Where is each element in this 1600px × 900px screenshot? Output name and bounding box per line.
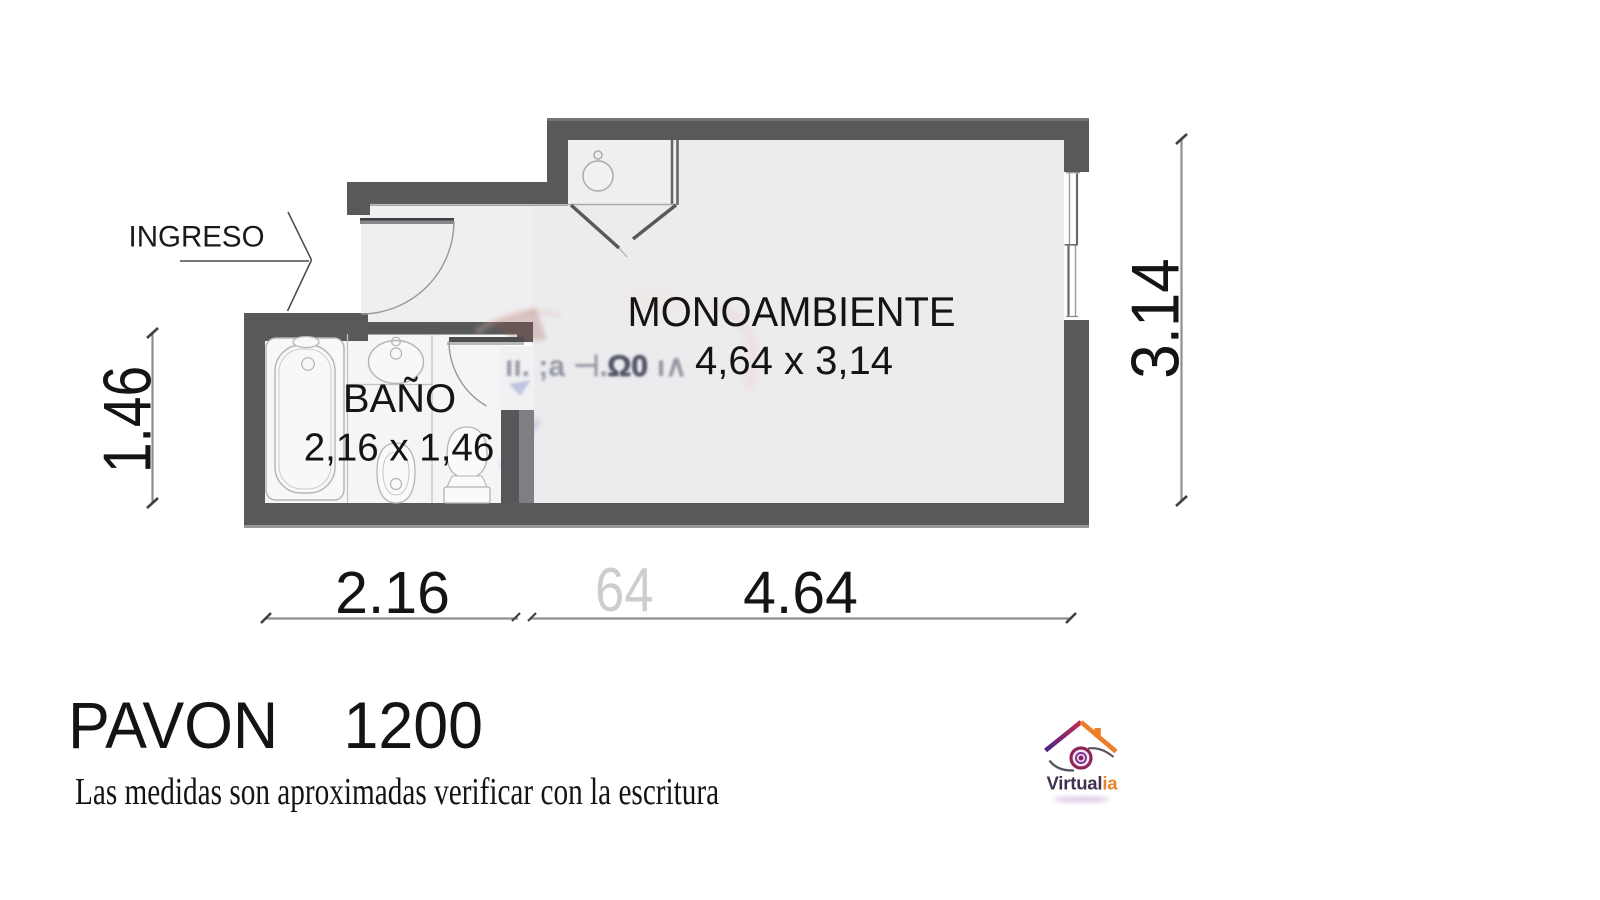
svg-text:4.64: 4.64	[743, 560, 858, 626]
svg-text:1.46: 1.46	[90, 366, 166, 473]
svg-text:PAVON1200: PAVON1200	[68, 689, 483, 763]
svg-text:Virtualia: Virtualia	[1047, 773, 1119, 794]
svg-text:4,64 x 3,14: 4,64 x 3,14	[695, 339, 893, 383]
svg-text:ıı. ;a ⊣.Ω0 ı∧: ıı. ;a ⊣.Ω0 ı∧	[505, 350, 687, 383]
svg-text:64: 64	[595, 556, 654, 625]
svg-text:Ω0: Ω0	[607, 350, 648, 383]
svg-text:2.16: 2.16	[335, 560, 450, 626]
svg-text:INGRESO: INGRESO	[129, 221, 265, 254]
svg-text:BAÑO: BAÑO	[343, 376, 456, 421]
svg-text:2,16 x 1,46: 2,16 x 1,46	[304, 427, 495, 470]
svg-text:Las medidas son aproximadas ve: Las medidas son aproximadas verificar co…	[75, 772, 719, 813]
svg-text:3.14: 3.14	[1117, 258, 1193, 378]
svg-text:MONOAMBIENTE: MONOAMBIENTE	[627, 288, 955, 335]
